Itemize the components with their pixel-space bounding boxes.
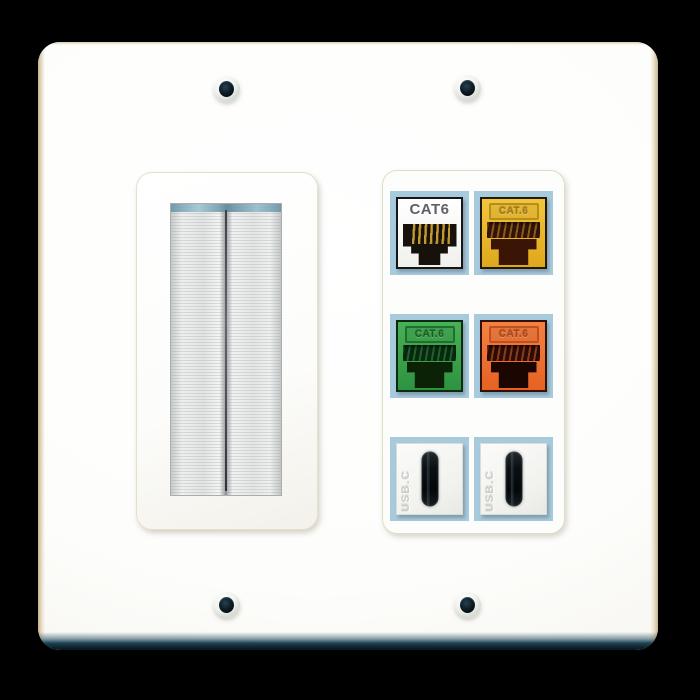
port-cat6-orange: CAT.6 [474, 314, 553, 398]
wall-plate: CAT6 CAT.6 CAT.6 CAT.6 [38, 42, 658, 650]
rj45-pin-vent-icon [403, 345, 456, 361]
rj45-latch-opening-icon [491, 239, 537, 265]
port-cat6-green: CAT.6 [390, 314, 469, 398]
port-usb-c-right: USB.C [474, 437, 553, 521]
brush-passthrough-frame [136, 172, 318, 530]
rj45-latch-opening-icon [407, 362, 453, 388]
rj45-pin-vent-icon [487, 345, 540, 361]
cat6-jack-white: CAT6 [396, 197, 463, 269]
port-cat6-white: CAT6 [390, 191, 469, 275]
usb-c-slot-icon [421, 452, 438, 507]
port-label: USB.C [484, 450, 496, 512]
usb-c-jack: USB.C [480, 443, 547, 515]
screw-bottom-right [455, 592, 481, 618]
cat6-jack-orange: CAT.6 [480, 320, 547, 392]
rj45-latch-opening-icon [491, 362, 537, 388]
screw-top-right [455, 75, 481, 101]
usb-c-slot-icon [505, 452, 522, 507]
screw-hole-icon [219, 81, 234, 97]
plate-left-edge [38, 42, 45, 650]
brush-center-seam [225, 210, 227, 491]
port-label: CAT.6 [489, 326, 539, 343]
port-label: USB.C [400, 450, 412, 512]
screw-top-left [214, 76, 240, 102]
port-label: CAT6 [398, 201, 461, 218]
screw-hole-icon [460, 597, 475, 613]
gold-pins-icon [410, 224, 450, 244]
port-cat6-yellow: CAT.6 [474, 191, 553, 275]
rj45-pin-vent-icon [487, 222, 540, 238]
cat6-jack-green: CAT.6 [396, 320, 463, 392]
plate-right-edge [650, 42, 658, 650]
port-label: CAT.6 [405, 326, 455, 343]
plate-bottom-bevel [38, 632, 658, 650]
usb-c-jack: USB.C [396, 443, 463, 515]
port-label: CAT.6 [489, 203, 539, 220]
brush-passthrough-opening [170, 203, 282, 496]
rj45-opening-icon [403, 224, 457, 265]
cat6-jack-yellow: CAT.6 [480, 197, 547, 269]
screw-hole-icon [219, 597, 234, 613]
keystone-port-panel: CAT6 CAT.6 CAT.6 CAT.6 [382, 170, 565, 534]
screw-hole-icon [460, 80, 475, 96]
port-usb-c-left: USB.C [390, 437, 469, 521]
screw-bottom-left [214, 592, 240, 618]
plate-top-edge [38, 42, 658, 45]
